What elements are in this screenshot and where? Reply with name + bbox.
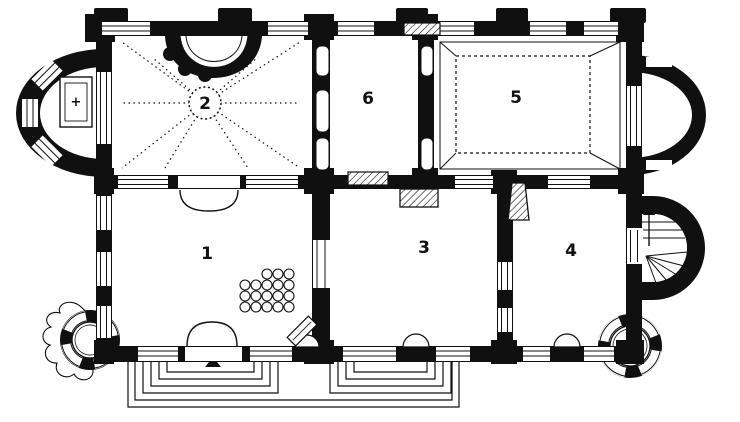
room-4-label: 4 — [565, 241, 577, 261]
room-3-label: 3 — [418, 238, 430, 258]
apse-niche — [646, 160, 672, 170]
altar: + — [60, 77, 92, 127]
floorplan-figure: + 1 2 3 4 5 6 — [0, 0, 740, 422]
tile-stove-trapezoid — [508, 183, 529, 220]
room6-west-niches — [316, 46, 329, 170]
stove-in-wall-hatched — [348, 172, 388, 185]
room-6-label: 6 — [362, 89, 374, 109]
room-1-label: 1 — [201, 244, 213, 264]
altar-cross: + — [71, 95, 82, 110]
apse-niche — [646, 57, 672, 67]
floorplan-drawing: + 1 2 3 4 5 6 — [0, 0, 740, 422]
stove-flue-hatched — [404, 23, 440, 35]
tile-stove-room3 — [400, 189, 438, 207]
room-5-label: 5 — [510, 88, 522, 108]
room-2-label: 2 — [199, 94, 211, 114]
apse-window — [22, 99, 38, 127]
